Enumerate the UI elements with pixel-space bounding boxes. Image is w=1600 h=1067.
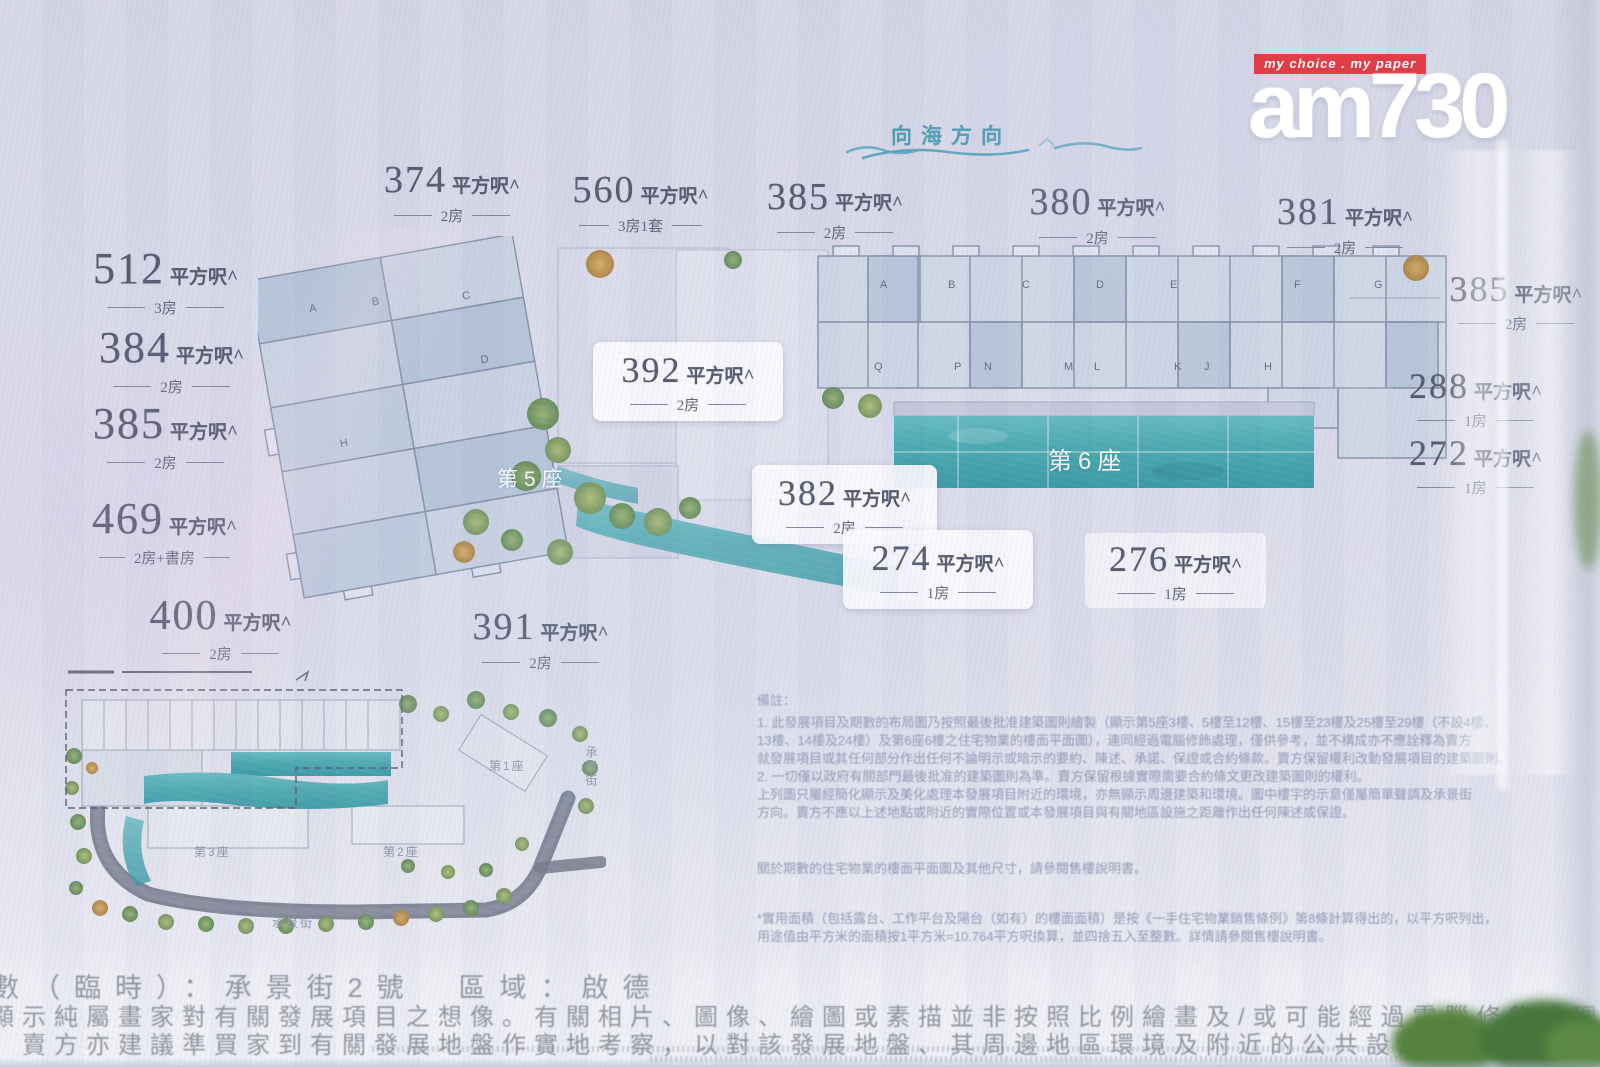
plan-letter: C — [1022, 279, 1030, 291]
inset-street-bottom-label: 承景街 — [272, 914, 314, 931]
plan-letter: H — [1264, 361, 1272, 373]
dash-line — [880, 592, 918, 593]
dash-line — [958, 592, 996, 593]
rooms-value: 1房 — [1464, 410, 1487, 431]
dash-line — [579, 225, 609, 226]
plan-letter: F — [1294, 279, 1301, 291]
dash-line — [186, 462, 224, 463]
area-unit: 平方呎^ — [843, 489, 911, 510]
unit-label-512: 512平方呎^ 3房 — [78, 243, 253, 318]
area-value: 380 — [1029, 181, 1092, 223]
am730-logo: my choice . my paper am730 — [1248, 46, 1508, 171]
area-unit: 平方呎^ — [170, 267, 238, 288]
area-value: 384 — [99, 323, 171, 372]
unit-label-384: 384平方呎^ 2房 — [84, 322, 259, 397]
area-value: 400 — [149, 593, 218, 639]
inset-site-plan — [56, 656, 606, 946]
area-value: 288 — [1409, 366, 1469, 406]
dash-line — [107, 307, 145, 308]
rooms-value: 3房 — [154, 297, 177, 318]
dash-line — [204, 557, 230, 558]
dash-line — [1536, 323, 1574, 324]
unit-label-385-left: 385平方呎^ 2房 — [78, 398, 253, 473]
area-unit: 平方呎^ — [540, 623, 608, 644]
rooms-value: 2房 — [1334, 237, 1357, 258]
rooms-value: 1房 — [1164, 583, 1187, 604]
plan-letter: E — [1170, 279, 1177, 291]
rooms-value: 3房1套 — [618, 215, 663, 236]
unit-label-385-top: 385平方呎^ 2房 — [745, 175, 925, 243]
area-unit: 平方呎^ — [452, 176, 520, 197]
dash-line — [1417, 420, 1455, 421]
dash-line — [1287, 247, 1325, 248]
sea-direction-label: 向海方向 — [891, 120, 1011, 150]
remarks-para2: 關於期數的住宅物業的樓面平面圖及其他尺寸，請參閱售樓說明書。 — [757, 860, 1567, 878]
area-unit: 平方呎^ — [1474, 449, 1542, 470]
unit-label-560: 560平方呎^ 3房1套 — [548, 168, 733, 236]
area-unit: 平方呎^ — [223, 613, 291, 634]
remarks-para3-line: *實用面積（包括露台、工作平台及陽台（如有）的樓面面積）是按《一手住宅物業銷售條… — [757, 910, 1567, 928]
dash-line — [241, 653, 279, 654]
area-unit: 平方呎^ — [640, 186, 708, 207]
plan-letter: J — [1204, 361, 1210, 373]
area-unit: 平方呎^ — [835, 193, 903, 214]
dash-line — [786, 527, 824, 528]
area-unit: 平方呎^ — [1514, 285, 1582, 306]
remarks-block: 備註： 1. 此發展項目及期數的布局圖乃按照最後批准建築圖則繪製（顯示第5座3樓… — [757, 692, 1567, 946]
area-unit: 平方呎^ — [686, 366, 754, 387]
dash-line — [1365, 247, 1403, 248]
remarks-line: 上列圖只屬經簡化顯示及美化處理本發展項目附近的環境，亦無顯示周邊建築和環境。圖中… — [757, 786, 1567, 804]
unit-label-385-right: 385平方呎^ 2房 — [1432, 268, 1600, 334]
unit-label-469: 469平方呎^ 2房+書房 — [62, 493, 267, 568]
dash-line — [482, 662, 520, 663]
plan-letter: A — [880, 279, 888, 291]
block6-label: 第6座 — [1048, 441, 1127, 476]
rooms-value: 2房+書房 — [134, 547, 195, 568]
plan-letter: K — [1174, 361, 1182, 373]
rooms-value: 2房 — [160, 376, 183, 397]
dash-line — [99, 557, 125, 558]
unit-label-288: 288平方呎^ 1房 — [1388, 365, 1563, 431]
plan-letter: Q — [874, 361, 883, 373]
area-value: 469 — [92, 494, 164, 543]
rooms-value: 2房 — [1086, 227, 1109, 248]
dash-line — [708, 404, 746, 405]
remarks-line: 就發展項目或其任何部分作出任何不論明示或暗示的要約、陳述、承諾、保證或合約條款。… — [757, 750, 1567, 768]
area-value: 392 — [621, 350, 681, 390]
floorplan-board-photo: A B C D H — [0, 0, 1600, 1067]
area-value: 385 — [1449, 269, 1509, 309]
area-value: 385 — [93, 399, 165, 448]
area-unit: 平方呎^ — [936, 554, 1004, 575]
dash-line — [1039, 237, 1077, 238]
area-unit: 平方呎^ — [1174, 555, 1242, 576]
dash-line — [472, 215, 510, 216]
area-unit: 平方呎^ — [1097, 198, 1165, 219]
inset-street-right-label: 承豐街 — [583, 746, 600, 788]
block5-plan: A B C D H — [258, 236, 570, 608]
unit-label-391: 391平方呎^ 2房 — [448, 605, 633, 673]
inset-tower3-label: 第3座 — [194, 843, 231, 860]
area-unit: 平方呎^ — [1345, 208, 1413, 229]
dash-line — [1196, 593, 1234, 594]
dash-line — [162, 653, 200, 654]
remarks-line: 13樓、14樓及24樓）及第6座6樓之住宅物業的樓面平面圖），連同經過電腦修飾處… — [757, 732, 1567, 750]
inset-tower2-label: 第2座 — [383, 843, 420, 860]
fine-print-strip — [650, 1056, 1600, 1062]
unit-label-274: 274平方呎^ 1房 — [843, 530, 1033, 609]
dash-line — [1458, 323, 1496, 324]
dash-line — [561, 662, 599, 663]
area-value: 381 — [1277, 191, 1340, 233]
dash-line — [865, 527, 903, 528]
dash-line — [855, 232, 893, 233]
area-unit: 平方呎^ — [176, 346, 244, 367]
area-unit: 平方呎^ — [169, 517, 237, 538]
unit-label-276: 276平方呎^ 1房 — [1085, 533, 1266, 608]
unit-label-400: 400平方呎^ 2房 — [128, 592, 313, 664]
dash-line — [630, 404, 668, 405]
unit-label-381: 381平方呎^ 2房 — [1255, 190, 1435, 258]
dash-line — [777, 232, 815, 233]
area-value: 272 — [1409, 433, 1469, 473]
unit-label-392: 3922房平方呎^ 2房 — [593, 342, 783, 421]
remarks-line: 方向。賣方不應以上述地點或附近的實際位置或本發展項目與有關地區設施之距離作出任何… — [757, 804, 1567, 822]
area-value: 274 — [871, 538, 931, 578]
rooms-value: 1房 — [1464, 477, 1487, 498]
fine-print-strip — [372, 1046, 1600, 1052]
rooms-value: 2房 — [677, 394, 700, 415]
dash-line — [107, 462, 145, 463]
dash-line — [192, 386, 230, 387]
plan-letter: D — [1096, 279, 1104, 291]
block5-label: 第5座 — [497, 463, 569, 493]
dash-line — [1117, 593, 1155, 594]
rooms-value: 2房 — [1505, 313, 1528, 334]
logo-name: am730 — [1248, 60, 1504, 152]
unit-label-380: 380平方呎^ 2房 — [1005, 180, 1190, 248]
unit-label-374: 374平方呎^ 2房 — [362, 158, 542, 226]
plan-letter: L — [1094, 361, 1100, 373]
dash-line — [1496, 487, 1534, 488]
foliage-blur — [1574, 430, 1600, 570]
dash-line — [186, 307, 224, 308]
remarks-para3-line: 用途值由平方米的面積按1平方米=10.764平方呎換算，並四捨五入至整數。詳情請… — [757, 928, 1567, 946]
unit-label-272: 272平方呎^ 1房 — [1388, 432, 1563, 498]
rooms-value: 2房 — [529, 652, 552, 673]
remarks-line: 2. 一切僅以政府有關部門最後批准的建築圖則為準。賣方保留根據實際需要合約條文更… — [757, 768, 1567, 786]
dash-line — [1496, 420, 1534, 421]
area-value: 512 — [93, 244, 165, 293]
area-unit: 平方呎^ — [1474, 382, 1542, 403]
north-arrow — [296, 672, 308, 681]
area-value: 391 — [472, 606, 535, 648]
dash-line — [1417, 487, 1455, 488]
plan-letter: G — [1374, 279, 1383, 291]
plan-letter: P — [954, 361, 961, 373]
area-value: 560 — [572, 169, 635, 211]
dash-line — [394, 215, 432, 216]
rooms-value: 2房 — [209, 643, 232, 664]
inset-tower1-label: 第1座 — [489, 757, 526, 774]
plan-letter: N — [984, 361, 992, 373]
rooms-value: 1房 — [927, 582, 950, 603]
plan-letter: B — [948, 279, 955, 291]
plan-letter: M — [1064, 361, 1073, 373]
remarks-heading: 備註： — [757, 692, 1567, 710]
dash-line — [672, 225, 702, 226]
disclaimer-line-2: 。賣方亦建議準買家到有關發展地盤作實地考察，以對該發展地盤、其周邊地區環境及附近… — [0, 1025, 1600, 1060]
area-value: 385 — [767, 176, 830, 218]
dash-line — [113, 386, 151, 387]
area-value: 374 — [384, 159, 447, 201]
dash-line — [1118, 237, 1156, 238]
area-value: 382 — [778, 473, 838, 513]
rooms-value: 2房 — [824, 222, 847, 243]
rooms-value: 2房 — [441, 205, 464, 226]
rooms-value: 2房 — [154, 452, 177, 473]
remarks-line: 1. 此發展項目及期數的布局圖乃按照最後批准建築圖則繪製（顯示第5座3樓、5樓至… — [757, 714, 1567, 732]
sea-direction: 向海方向 — [843, 110, 1143, 166]
area-value: 276 — [1109, 539, 1169, 579]
area-unit: 平方呎^ — [170, 422, 238, 443]
